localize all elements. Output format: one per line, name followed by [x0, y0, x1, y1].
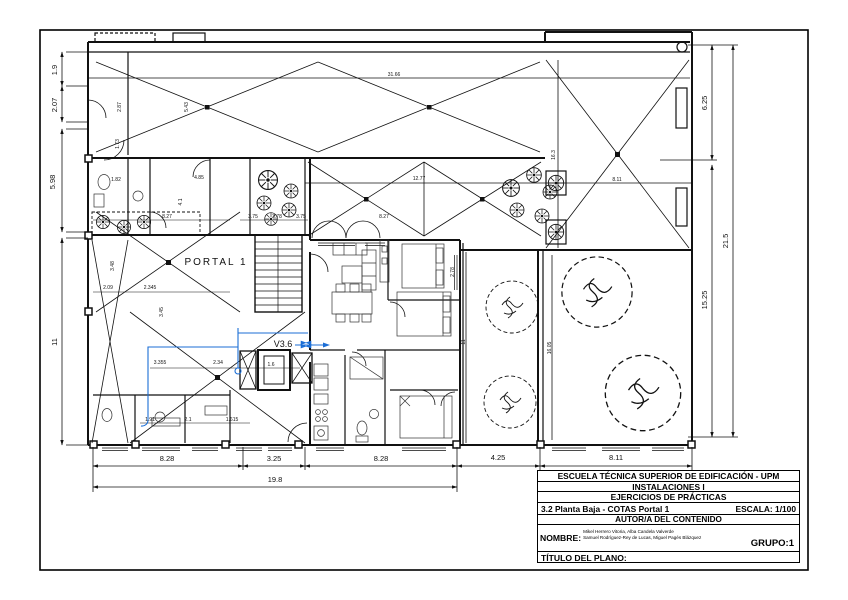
- authors-row: NOMBRE: Mikel Herrero Vitoria, Alba Cand…: [538, 525, 799, 552]
- dim-label: 2.78: [450, 267, 456, 277]
- dim-label: 8.11: [609, 453, 623, 462]
- dim-label: 3.78: [272, 214, 282, 220]
- elevator: [240, 350, 312, 390]
- section-name: EJERCICIOS DE PRÁCTICAS: [538, 492, 799, 503]
- dim-label: 3.45: [159, 307, 165, 317]
- dim-label: 11: [461, 339, 467, 344]
- dim-label: 8.27: [162, 214, 172, 220]
- dim-label: 8.28: [374, 454, 389, 463]
- dim-label: 16.3: [551, 150, 557, 160]
- garden-trees: [484, 257, 681, 431]
- dim-label: 1.6: [268, 362, 275, 368]
- dim-label: 3.355: [154, 360, 167, 366]
- dim-label: 15.25: [700, 291, 709, 310]
- dim-label: 1.73: [115, 139, 121, 149]
- dim-label: 16.05: [547, 342, 553, 355]
- dim-label: 12.77: [413, 176, 426, 182]
- dim-label: 2.1: [185, 417, 192, 423]
- dim-label: 3.75: [248, 214, 258, 220]
- dim-label: 8.27: [379, 214, 389, 220]
- staircase: [255, 235, 302, 312]
- plan-title-label: TÍTULO DEL PLANO:: [538, 552, 799, 563]
- dim-label: 21.5: [721, 234, 730, 249]
- valve-annotation: [141, 328, 330, 426]
- group-label: GRUPO:1: [751, 538, 794, 549]
- dim-label: 2.87: [117, 102, 123, 112]
- bracing-lines: [88, 60, 692, 443]
- dim-label: 3.75: [296, 214, 306, 220]
- dim-label: 6.25: [700, 96, 709, 111]
- dim-label: 3.48: [110, 261, 116, 271]
- title-block: ESCUELA TÉCNICA SUPERIOR DE EDIFICACIÓN …: [537, 470, 800, 563]
- author-names: Mikel Herrero Vitoria, Alba Candela Valv…: [583, 529, 701, 541]
- dim-label: 19.8: [268, 475, 283, 484]
- name-label: NOMBRE:: [540, 533, 581, 543]
- dim-label: 3.25: [267, 454, 282, 463]
- dim-label: 5.43: [184, 102, 190, 112]
- dim-label: 31.66: [388, 72, 401, 78]
- scale-label: ESCALA: 1/100: [735, 504, 796, 514]
- authorship-header: AUTOR/A DEL CONTENIDO: [538, 515, 799, 525]
- sheet-row: 3.2 Planta Baja - COTAS Portal 1 ESCALA:…: [538, 503, 799, 515]
- dim-label: 2.07: [50, 98, 59, 113]
- dim-label: 8.28: [160, 454, 175, 463]
- dim-label: 2.345: [144, 285, 157, 291]
- plan-walls: [88, 32, 692, 445]
- dim-label: V3.6: [274, 339, 293, 349]
- course-name: INSTALACIONES I: [538, 482, 799, 492]
- dim-label: 8.11: [612, 177, 622, 183]
- dim-label: 5.98: [48, 175, 57, 190]
- dim-label: 1.82: [111, 177, 121, 183]
- rosette-motifs: [96, 168, 563, 240]
- dim-label: 4.85: [194, 175, 204, 181]
- drawing-sheet: 1.92.075.98116.2515.2521.58.283.258.284.…: [0, 0, 848, 600]
- dim-label: 4.1: [178, 198, 184, 205]
- dim-label: 2.34: [213, 360, 223, 366]
- dim-label: 2.09: [103, 285, 113, 291]
- school-name: ESCUELA TÉCNICA SUPERIOR DE EDIFICACIÓN …: [538, 471, 799, 482]
- dim-label: 11: [50, 338, 59, 346]
- sheet-title: 3.2 Planta Baja - COTAS Portal 1: [541, 504, 669, 514]
- dim-label: 1.615: [226, 417, 239, 423]
- dim-label: 1.91: [145, 417, 155, 423]
- dim-label: PORTAL 1: [184, 257, 247, 268]
- dim-label: 4.25: [491, 453, 506, 462]
- structural-columns: [85, 155, 695, 448]
- dim-label: 1.9: [50, 65, 59, 75]
